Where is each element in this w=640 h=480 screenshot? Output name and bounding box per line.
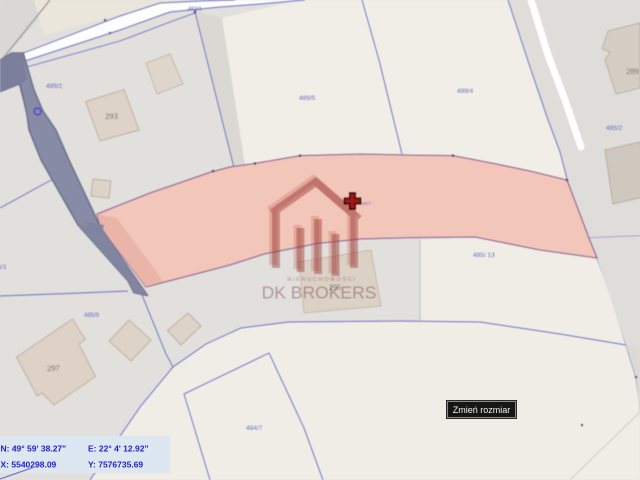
svg-text:485/1: 485/1 [0, 264, 7, 271]
svg-text:489/5: 489/5 [299, 95, 316, 102]
svg-text:489/4: 489/4 [457, 88, 474, 95]
svg-text:482/1: 482/1 [188, 7, 202, 13]
svg-text:289: 289 [626, 66, 639, 76]
svg-text:484/7: 484/7 [246, 425, 263, 432]
svg-text:485/2: 485/2 [606, 125, 623, 132]
svg-text:Zmień rozmiar: Zmień rozmiar [453, 405, 511, 415]
svg-text:485/ 13: 485/ 13 [473, 252, 495, 259]
svg-text:DK BROKERS: DK BROKERS [262, 283, 377, 303]
svg-text:Y: 7576735.69: Y: 7576735.69 [88, 460, 143, 470]
svg-text:E: 22° 4' 12.92": E: 22° 4' 12.92" [88, 444, 149, 454]
svg-text:293: 293 [105, 111, 118, 121]
svg-text:489/2: 489/2 [46, 83, 63, 90]
svg-text:485/9: 485/9 [84, 313, 100, 319]
svg-text:N: 49° 59' 38.27": N: 49° 59' 38.27" [1, 444, 67, 454]
svg-text:485/7: 485/7 [360, 201, 372, 206]
svg-text:X: 5540298.09: X: 5540298.09 [1, 460, 57, 470]
svg-text:297: 297 [47, 363, 60, 373]
